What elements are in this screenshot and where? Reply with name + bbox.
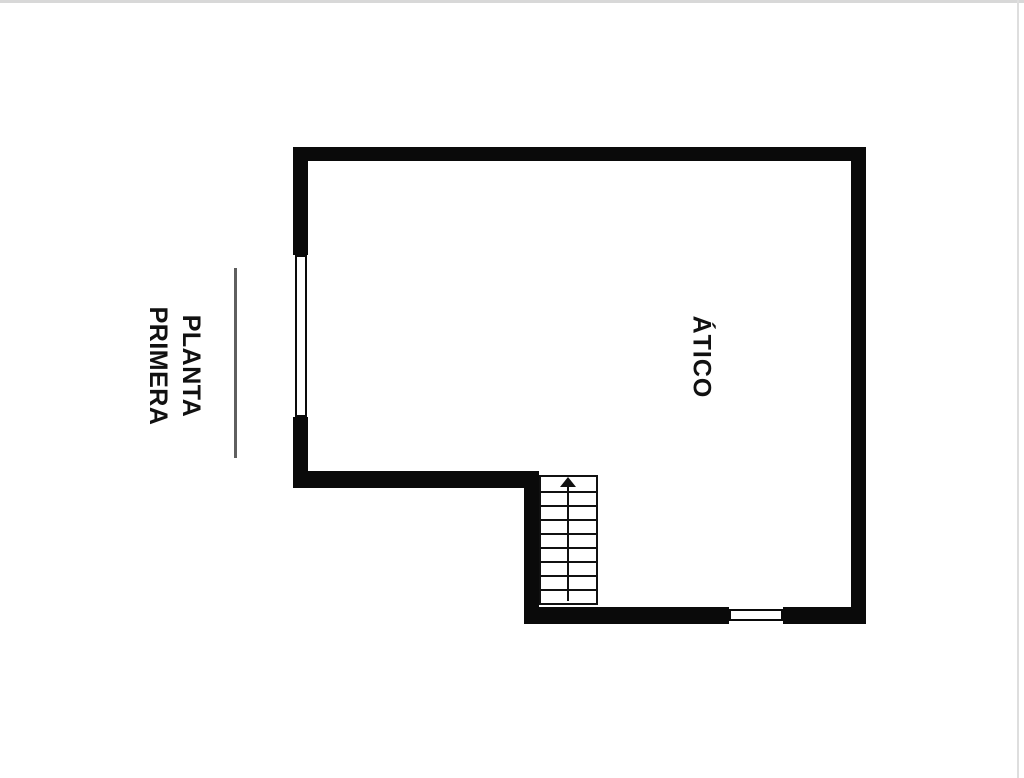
left-window-cap-bottom <box>293 417 308 424</box>
bottom-window-cap-left <box>722 607 729 624</box>
floor-plan-page: PLANTA PRIMERA ÁTICO <box>0 0 1024 778</box>
wall-right <box>851 147 866 624</box>
page-right-border <box>1017 0 1019 778</box>
room-label-atico: ÁTICO <box>687 316 716 399</box>
floor-title-label: PLANTA PRIMERA <box>141 307 207 426</box>
floor-title-line2: PRIMERA <box>141 307 174 426</box>
stairs-up-arrow-icon <box>560 477 576 487</box>
left-wall-window <box>295 255 307 417</box>
floor-title-line1: PLANTA <box>174 307 207 426</box>
bottom-wall-window <box>729 609 783 621</box>
wall-top <box>293 147 866 161</box>
wall-left-upper <box>293 147 308 248</box>
wall-notch-horizontal <box>293 471 539 488</box>
title-divider-line <box>234 268 237 458</box>
wall-notch-vertical <box>524 471 539 624</box>
wall-bottom-left <box>524 607 722 624</box>
left-window-cap-top <box>293 248 308 255</box>
wall-bottom-right <box>790 607 866 624</box>
bottom-window-cap-right <box>783 607 790 624</box>
stairs-up-arrow-line <box>567 487 569 601</box>
page-top-border <box>0 0 1024 3</box>
